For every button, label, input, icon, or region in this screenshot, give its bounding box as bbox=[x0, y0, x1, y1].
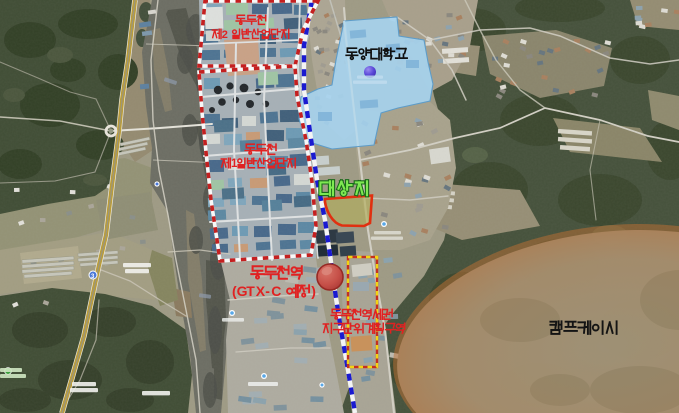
svg-text:T: T bbox=[246, 283, 255, 299]
svg-text:): ) bbox=[311, 283, 316, 299]
svg-text:-: - bbox=[265, 283, 270, 299]
svg-text:C: C bbox=[271, 283, 281, 299]
svg-text:2: 2 bbox=[222, 29, 228, 41]
svg-text:X: X bbox=[256, 283, 266, 299]
svg-text:1: 1 bbox=[231, 158, 238, 170]
